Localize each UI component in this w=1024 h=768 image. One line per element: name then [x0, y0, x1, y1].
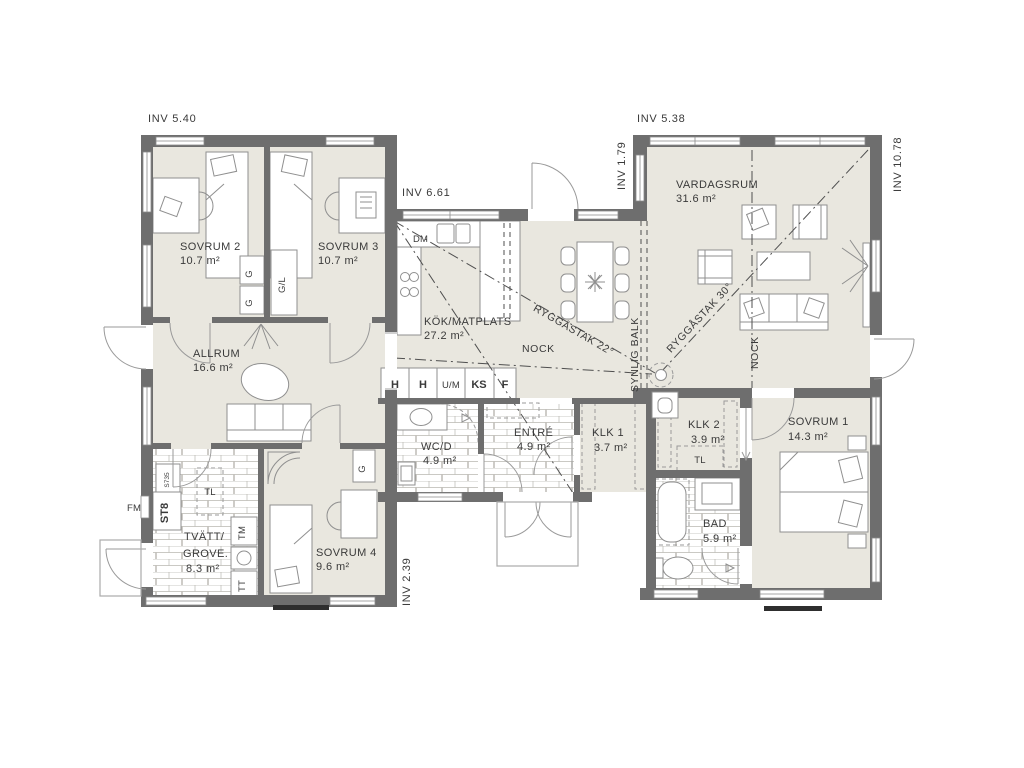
label-klk2: KLK 2 — [688, 419, 720, 431]
label-sovrum2: SOVRUM 2 — [180, 241, 241, 253]
wall — [478, 404, 484, 454]
label-g2: G — [244, 299, 255, 307]
label-kok: KÖK/MATPLATS — [424, 316, 512, 328]
label-tvatt: TVÄTT/ — [184, 531, 225, 543]
wall — [340, 443, 385, 449]
armchair-2 — [793, 205, 827, 239]
wall — [646, 398, 656, 600]
label-h1: H — [391, 379, 399, 391]
label-tvatt-2: GROVE. — [183, 548, 228, 560]
area-entre: 4.9 m² — [517, 441, 551, 453]
label-sovrum3: SOVRUM 3 — [318, 241, 379, 253]
area-sovrum3: 10.7 m² — [318, 255, 358, 267]
floor-plan-drawing: INV 5.40 INV 6.61 INV 5.38 INV 1.79 INV … — [0, 0, 1024, 768]
label-klk1: KLK 1 — [592, 427, 624, 439]
fm-hatch — [141, 496, 149, 518]
label-sovrum1: SOVRUM 1 — [788, 416, 849, 428]
label-gl: G/L — [277, 277, 288, 293]
area-sovrum2: 10.7 m² — [180, 255, 220, 267]
chimney-flue — [656, 370, 667, 381]
label-nock-kitchen: NOCK — [522, 343, 555, 355]
wall — [372, 317, 385, 323]
wall — [572, 398, 648, 404]
label-fm: FM — [127, 503, 141, 514]
label-wcd: WC/D — [421, 441, 452, 453]
tv-bench — [863, 243, 870, 327]
area-sovrum1: 14.3 m² — [788, 431, 828, 443]
area-wcd: 4.9 m² — [423, 455, 457, 467]
kitchen-sink-2 — [456, 224, 470, 243]
dining-chair-6 — [615, 301, 629, 319]
pillow-sovrum4 — [275, 566, 300, 587]
area-tvatt: 8.3 m² — [186, 563, 220, 575]
area-allrum: 16.6 m² — [193, 362, 233, 374]
dim-inv-top-right: INV 5.38 — [637, 113, 685, 125]
wall — [385, 147, 397, 332]
kitchen-sink-1 — [437, 224, 454, 243]
label-tl1: TL — [204, 487, 216, 498]
wcd-sink — [410, 409, 432, 426]
area-vardagsrum: 31.6 m² — [676, 193, 716, 205]
nightstand-2 — [848, 534, 866, 548]
door-tvatt-exterior — [106, 549, 146, 589]
label-g4: G — [357, 465, 368, 473]
wall — [574, 404, 580, 435]
wall — [656, 470, 740, 478]
label-allrum: ALLRUM — [193, 348, 240, 360]
label-beam: SYNLIG BALK — [629, 317, 641, 392]
wall — [740, 584, 752, 600]
label-tt: TT — [237, 580, 248, 592]
coffee-table — [757, 252, 810, 280]
toilet-bowl — [663, 557, 693, 579]
label-vardagsrum: VARDAGSRUM — [676, 179, 758, 191]
bathtub — [658, 482, 686, 542]
wall — [633, 388, 752, 398]
dim-inv-right: INV 10.78 — [892, 137, 904, 192]
wall — [740, 458, 752, 546]
label-st8: ST8 — [159, 503, 171, 523]
wall — [264, 147, 270, 317]
entry-grate-2 — [764, 606, 822, 611]
wall — [740, 398, 752, 408]
label-s735: S735 — [164, 472, 171, 488]
label-h2: H — [419, 379, 427, 391]
area-sovrum4: 9.6 m² — [316, 561, 350, 573]
label-bad: BAD — [703, 518, 727, 530]
label-dm: DM — [413, 234, 428, 245]
area-bad: 5.9 m² — [703, 533, 737, 545]
desk-sovrum4 — [341, 490, 377, 538]
dining-chair-1 — [561, 247, 575, 265]
area-klk2: 3.9 m² — [691, 434, 725, 446]
sink-tvatt — [231, 547, 257, 569]
door-entrance-double — [505, 502, 571, 537]
sofa-allrum — [227, 404, 311, 441]
label-nock-living: NOCK — [749, 336, 761, 369]
area-kok: 27.2 m² — [424, 330, 464, 342]
label-tm: TM — [237, 526, 248, 540]
label-entre: ENTRÉ — [514, 426, 553, 439]
floor-plan-page: INV 5.40 INV 6.61 INV 5.38 INV 1.79 INV … — [0, 0, 1024, 768]
dim-inv-wing-left: INV 1.79 — [616, 142, 628, 190]
label-tl2: TL — [694, 455, 706, 466]
label-f: F — [502, 379, 509, 391]
closet-g1 — [240, 256, 264, 284]
dining-chair-4 — [615, 247, 629, 265]
wall — [153, 317, 170, 323]
wall — [212, 317, 328, 323]
side-chair — [698, 250, 732, 284]
label-um: U/M — [442, 380, 460, 391]
fireplace-box — [652, 392, 678, 418]
kitchen-island — [480, 221, 520, 321]
dim-inv-bottom: INV 2.39 — [401, 558, 413, 606]
wall — [574, 475, 580, 492]
area-klk1: 3.7 m² — [594, 442, 628, 454]
label-ks: KS — [471, 379, 486, 391]
label-sovrum4: SOVRUM 4 — [316, 547, 377, 559]
wall — [258, 449, 264, 595]
dining-chair-2 — [561, 274, 575, 292]
dining-chair-5 — [615, 274, 629, 292]
dim-inv-top-left: INV 5.40 — [148, 113, 196, 125]
nightstand-1 — [848, 436, 866, 450]
monitor-sovrum3 — [356, 192, 376, 218]
dim-inv-kitchen: INV 6.61 — [402, 187, 450, 199]
door-kitchen-patio — [532, 163, 578, 209]
dining-chair-3 — [561, 301, 575, 319]
table-plant — [585, 272, 605, 292]
wall — [378, 398, 520, 404]
wall — [794, 388, 882, 398]
door-allrum-exterior — [104, 327, 146, 369]
label-g1: G — [244, 270, 255, 278]
entry-grate-1 — [273, 605, 329, 610]
wall — [211, 443, 302, 449]
wall — [153, 443, 171, 449]
